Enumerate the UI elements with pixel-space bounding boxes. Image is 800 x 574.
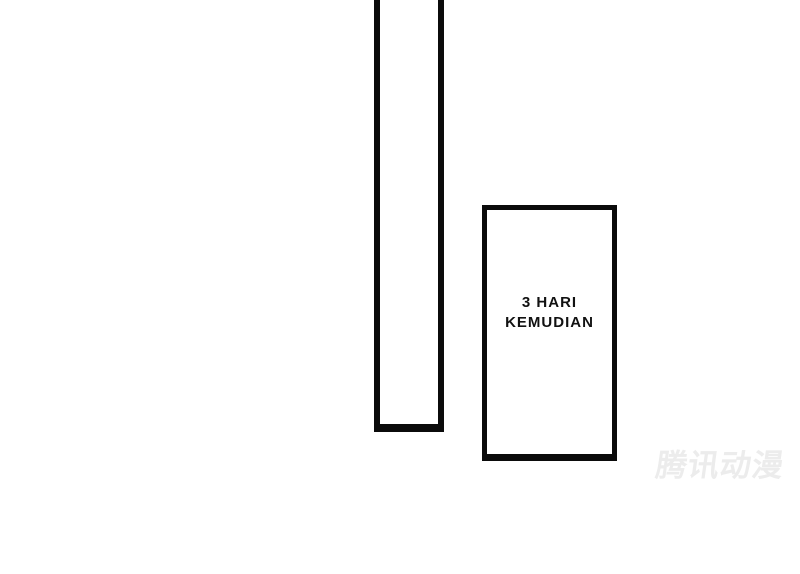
comic-panel-tall [374, 0, 444, 432]
tencent-comics-watermark: 腾讯动漫 [653, 448, 786, 484]
comic-panel-caption: 3 HARI KEMUDIAN [482, 205, 617, 461]
comic-page: 3 HARI KEMUDIAN 腾讯动漫 [0, 0, 800, 574]
caption-line-2: KEMUDIAN [505, 313, 594, 333]
caption-line-1: 3 HARI [522, 293, 577, 313]
